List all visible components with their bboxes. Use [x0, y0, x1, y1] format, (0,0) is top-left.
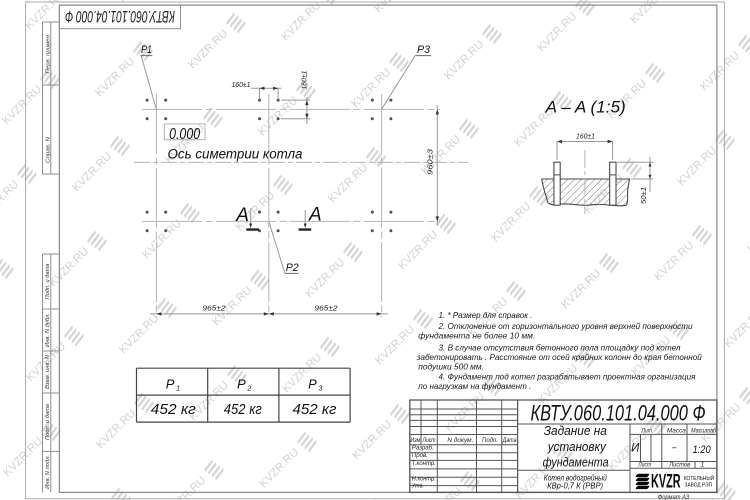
svg-text:KVZR.RU: KVZR.RU [0, 83, 44, 127]
svg-text:160±1: 160±1 [576, 132, 595, 141]
svg-text:КВТУ.060.101.04.000 Ф: КВТУ.060.101.04.000 Ф [65, 7, 175, 26]
svg-text:Задание на: Задание на [544, 424, 607, 438]
svg-text:Лист: Лист [637, 462, 651, 469]
svg-text:Инв. N подл.: Инв. N подл. [45, 455, 51, 489]
svg-text:KVZR.RU: KVZR.RU [349, 66, 393, 110]
svg-text:KVZR.RU: KVZR.RU [559, 267, 603, 311]
svg-text:KVZR.RU: KVZR.RU [47, 245, 91, 289]
svg-text:4. Фундамент под котел раз: 4. Фундамент под котел разрабатывает про… [439, 373, 697, 382]
svg-text:Н.контр.: Н.контр. [412, 476, 436, 482]
svg-text:KVZR.RU: KVZR.RU [443, 390, 487, 434]
svg-text:2. Отклонение от горизонтал: 2. Отклонение от горизонтального уровня … [438, 322, 693, 331]
svg-text:KVZR.RU: KVZR.RU [396, 228, 440, 272]
svg-text:Подп. и дата: Подп. и дата [45, 403, 51, 440]
svg-text:KVZR.RU: KVZR.RU [373, 323, 417, 367]
svg-text:KVZR.RU: KVZR.RU [140, 217, 184, 261]
svg-text:965±2: 965±2 [315, 304, 338, 313]
svg-text:452 кг: 452 кг [224, 401, 263, 418]
svg-text:KVZR.RU: KVZR.RU [489, 200, 533, 244]
svg-text:КВТУ.060.101.04.000 Ф: КВТУ.060.101.04.000 Ф [531, 401, 706, 426]
svg-text:KVZR.RU: KVZR.RU [535, 10, 579, 54]
svg-text:KVZR.RU: KVZR.RU [303, 256, 347, 300]
svg-text:P3: P3 [417, 44, 431, 56]
svg-text:3. В случае отсутствия бет: 3. В случае отсутствия бетонного пола пл… [439, 343, 681, 352]
svg-text:–: – [671, 443, 677, 452]
svg-text:Пров.: Пров. [412, 453, 428, 459]
svg-text:KVZR.RU: KVZR.RU [94, 407, 138, 451]
svg-text:Инв. N дубл.: Инв. N дубл. [45, 313, 51, 347]
svg-text:Перв. примен.: Перв. примен. [45, 34, 51, 74]
svg-text:установку: установку [547, 440, 607, 454]
svg-text:фундамента: фундамента [543, 456, 609, 470]
svg-text:KVZR.RU: KVZR.RU [117, 312, 161, 356]
svg-text:P: P [237, 376, 246, 391]
svg-text:A: A [308, 205, 322, 226]
svg-text:452 кг: 452 кг [151, 401, 197, 418]
svg-text:Формат А3: Формат А3 [658, 494, 690, 500]
svg-text:KVZR.RU: KVZR.RU [350, 418, 394, 462]
svg-text:0.000: 0.000 [169, 126, 200, 143]
svg-text:A: A [235, 205, 249, 226]
svg-text:KVZR.RU: KVZR.RU [745, 211, 750, 255]
svg-text:Подп. и дата: Подп. и дата [45, 263, 51, 300]
svg-text:KVZR.RU: KVZR.RU [93, 55, 137, 99]
svg-text:Лист: Лист [422, 438, 436, 444]
svg-text:Справ. N: Справ. N [45, 136, 51, 163]
svg-text:Масштаб: Масштаб [691, 428, 717, 434]
svg-text:P: P [308, 376, 317, 391]
svg-text:Изм: Изм [410, 438, 420, 444]
svg-text:1:20: 1:20 [693, 444, 712, 456]
svg-text:KVZR.RU: KVZR.RU [675, 144, 719, 188]
svg-text:50±1: 50±1 [639, 187, 648, 204]
svg-text:ЗАВОД РЭП: ЗАВОД РЭП [685, 483, 713, 489]
svg-text:KVZR.RU: KVZR.RU [164, 474, 208, 500]
svg-text:по нагрузкам на фундамент .: по нагрузкам на фундамент . [418, 382, 531, 391]
svg-text:KVZR.RU: KVZR.RU [326, 161, 370, 205]
svg-text:A – A (1:5): A – A (1:5) [545, 99, 626, 117]
svg-text:KVZR.RU: KVZR.RU [186, 27, 230, 71]
svg-text:Т.контр.: Т.контр. [412, 461, 436, 467]
svg-text:1: 1 [176, 386, 180, 393]
svg-text:Взам. инв. N: Взам. инв. N [45, 354, 51, 389]
svg-text:Масса: Масса [667, 428, 687, 434]
svg-text:N докум.: N докум. [447, 438, 473, 444]
svg-text:фундамента не более 10 мм.: фундамента не более 10 мм. [418, 332, 535, 341]
svg-text:подушки 500 мм.: подушки 500 мм. [418, 363, 484, 372]
svg-text:Разраб.: Разраб. [412, 446, 434, 452]
svg-text:KVZR.RU: KVZR.RU [70, 150, 114, 194]
svg-text:3: 3 [319, 386, 323, 393]
svg-text:KVZR.RU: KVZR.RU [279, 0, 323, 43]
svg-text:KVZR.RU: KVZR.RU [699, 401, 743, 445]
svg-text:Подп.: Подп. [482, 438, 498, 444]
svg-text:KVZR.RU: KVZR.RU [1, 435, 45, 479]
svg-text:960±3: 960±3 [426, 149, 435, 175]
svg-text:И: И [631, 443, 640, 455]
svg-text:KVZR.RU: KVZR.RU [628, 0, 672, 26]
svg-text:КВр-0,7 К (РВР): КВр-0,7 К (РВР) [547, 482, 603, 491]
svg-text:Ось симетрии котла: Ось симетрии котла [168, 147, 303, 162]
svg-text:2: 2 [246, 386, 251, 393]
svg-text:P: P [166, 376, 175, 391]
svg-text:965±2: 965±2 [203, 304, 226, 313]
svg-text:Утв.: Утв. [411, 483, 424, 489]
svg-text:KVZR.RU: KVZR.RU [0, 178, 21, 222]
svg-text:забетонировать . Расстояние: забетонировать . Расстояние от осей край… [416, 353, 702, 362]
svg-text:KVZR.RU: KVZR.RU [652, 239, 696, 283]
svg-text:160±1: 160±1 [299, 71, 308, 90]
svg-text:Дата: Дата [502, 438, 517, 444]
svg-text:KVZR.RU: KVZR.RU [257, 446, 301, 490]
svg-text:KVZR.RU: KVZR.RU [442, 38, 486, 82]
svg-text:Лит.: Лит. [641, 428, 654, 434]
svg-text:Листов: Листов [668, 462, 690, 469]
svg-text:160±1: 160±1 [232, 80, 251, 89]
svg-text:KVZR.RU: KVZR.RU [722, 306, 750, 350]
svg-text:KVZR.RU: KVZR.RU [698, 49, 742, 93]
svg-text:452 кг: 452 кг [293, 401, 338, 418]
svg-text:KVZR: KVZR [651, 471, 681, 493]
svg-text:P1: P1 [141, 44, 152, 56]
svg-text:1: 1 [701, 462, 705, 469]
svg-text:1. * Размер для справок .: 1. * Размер для справок . [439, 311, 533, 320]
svg-text:P2: P2 [286, 262, 299, 274]
svg-text:КОТЕЛЬНЫЙ: КОТЕЛЬНЫЙ [684, 474, 715, 482]
